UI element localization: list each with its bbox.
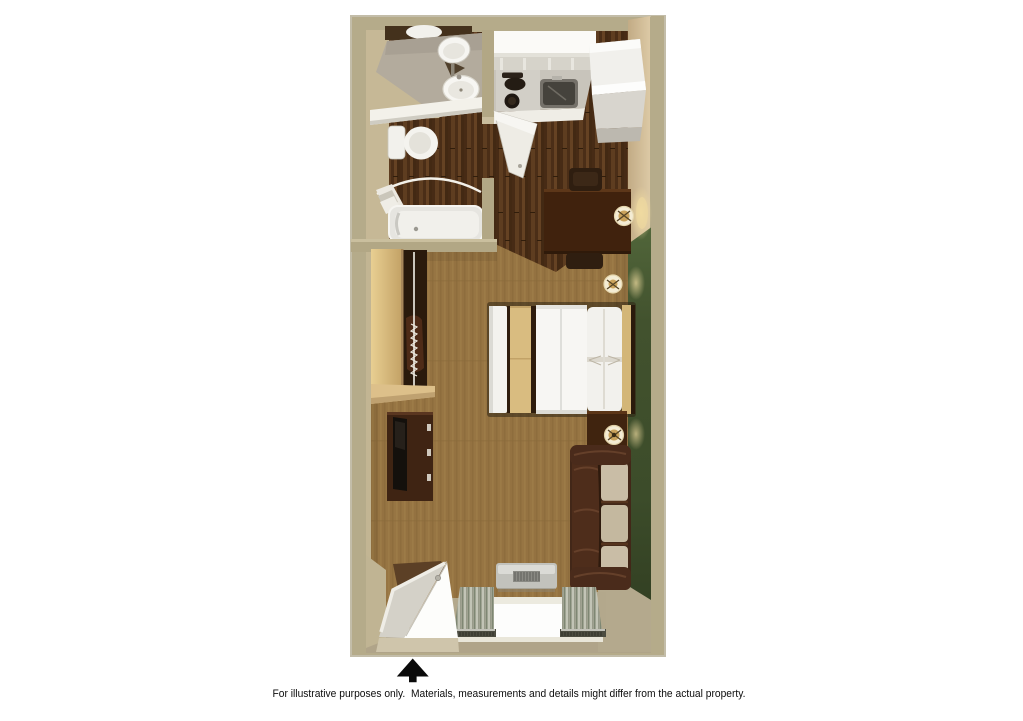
svg-text:For illustrative purposes only: For illustrative purposes only. Material… bbox=[273, 688, 746, 700]
